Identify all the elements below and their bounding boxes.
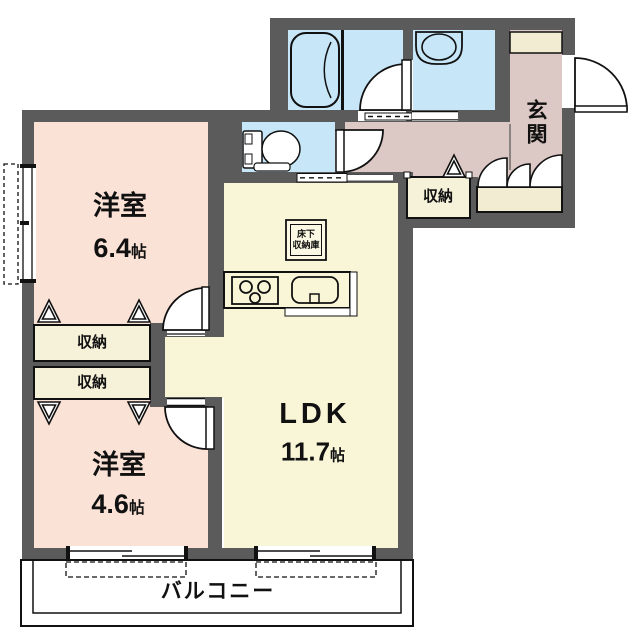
counter-toe-kick xyxy=(285,308,350,316)
balcony-label: バルコニー xyxy=(161,581,276,603)
bedroom2-size-unit: 帖 xyxy=(129,500,145,517)
window-jamb xyxy=(20,164,36,168)
bedroom2-door-leaf xyxy=(206,407,214,449)
window-jamb xyxy=(20,279,36,283)
bedroom2-name-label: 洋室 xyxy=(92,451,146,479)
shoe-cabinet xyxy=(477,187,562,212)
jamb-mark xyxy=(466,172,472,178)
bedroom2-size-label: 4.6帖 xyxy=(91,490,144,518)
bedroom1-size-value: 6.4 xyxy=(93,233,131,263)
ldk-name-label: LDK xyxy=(279,399,351,429)
balcony-dashed-area xyxy=(66,562,186,577)
wall-segment xyxy=(150,323,165,407)
bedroom2-size-value: 4.6 xyxy=(91,489,129,519)
counter-side-panel xyxy=(350,272,357,316)
washroom-door-leaf xyxy=(402,60,411,110)
ldk-size-label: 11.7帖 xyxy=(281,438,345,465)
toilet-base xyxy=(254,163,290,171)
toilet-bowl xyxy=(262,131,300,167)
entrance-label: 玄関 xyxy=(524,99,546,147)
wall-segment xyxy=(495,18,510,122)
bedroom1-size-unit: 帖 xyxy=(131,244,147,261)
bathtub xyxy=(291,33,339,107)
shutter-dashed-box xyxy=(4,164,18,284)
toilet-door-leaf xyxy=(336,130,344,172)
jamb-mark xyxy=(404,172,410,178)
closet-upper-label: 収納 xyxy=(77,335,107,351)
front-door-leaf xyxy=(575,106,627,112)
toilet-tank-detail xyxy=(245,134,252,144)
floor-plan-drawing xyxy=(0,0,640,640)
entrance-upper-cabinet xyxy=(510,32,562,53)
front-door-opening xyxy=(562,55,575,108)
ldk-size-value: 11.7 xyxy=(281,436,330,466)
window-catch xyxy=(20,221,29,225)
wall-segment xyxy=(270,18,288,122)
bedroom1-size-label: 6.4帖 xyxy=(93,234,146,262)
bedroom1-door-leaf xyxy=(202,287,209,330)
ldk-corridor-floor xyxy=(165,337,224,398)
balcony-dashed-area xyxy=(256,562,376,577)
hall-storage-label: 収納 xyxy=(423,189,453,205)
wall-segment xyxy=(208,110,224,337)
ldk-size-unit: 帖 xyxy=(330,447,345,464)
bedroom1-name-label: 洋室 xyxy=(93,192,147,220)
underfloor-storage-line2: 収納庫 xyxy=(292,240,319,251)
underfloor-storage-line1: 床下 xyxy=(292,229,319,240)
front-door-swing xyxy=(575,58,627,110)
wall-segment xyxy=(403,18,413,60)
underfloor-storage-label: 床下 収納庫 xyxy=(292,229,319,251)
wall-segment xyxy=(562,18,575,228)
wall-segment xyxy=(270,18,575,30)
floor-plan: 洋室 6.4帖 収納 収納 洋室 4.6帖 LDK 11.7帖 収納 床下 収納… xyxy=(0,0,640,640)
toilet-tank-detail xyxy=(245,154,252,164)
wall-segment xyxy=(341,30,344,110)
closet-lower-label: 収納 xyxy=(77,375,107,391)
wall-segment xyxy=(398,172,413,560)
